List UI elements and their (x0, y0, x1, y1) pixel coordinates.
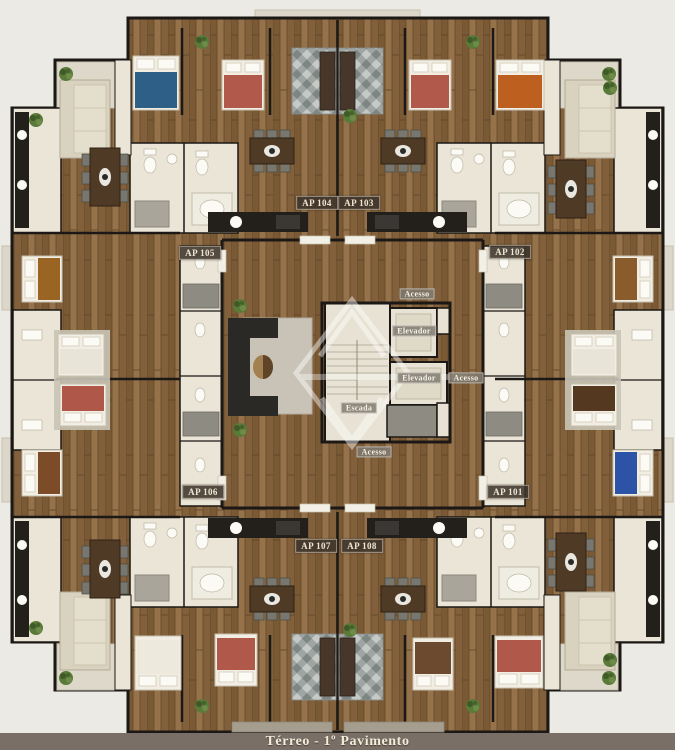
apartment-label-ap-104: AP 104 (296, 196, 338, 210)
apartment-label-ap-105: AP 105 (179, 246, 221, 260)
bed-brown-top-right (613, 256, 653, 302)
access-label-bottom: Acesso (357, 446, 392, 457)
access-label-top: Acesso (400, 288, 435, 299)
bed-white-right (571, 334, 617, 376)
bed-red-2 (409, 60, 451, 110)
bed-white-bottom (135, 636, 181, 690)
floor-caption: Térreo - 1º Pavimento (265, 734, 409, 750)
apartment-label-ap-101: AP 101 (487, 485, 529, 499)
floor-caption-bar: Térreo - 1º Pavimento (0, 733, 675, 750)
apartment-label-ap-103: AP 103 (338, 196, 380, 210)
bed-red-bottom-left (215, 634, 257, 686)
stairs-label: Escada (341, 402, 377, 413)
bed-orange (496, 60, 544, 110)
bed-white-left (58, 334, 104, 376)
elevator-label-2: Elevador (397, 372, 441, 383)
floor-plan-image: AP 101 AP 102 AP 103 AP 104 AP 105 AP 10… (0, 0, 675, 750)
apartment-label-ap-108: AP 108 (341, 539, 383, 553)
apartment-label-ap-102: AP 102 (489, 245, 531, 259)
bed-navy-bottom-right (613, 450, 653, 496)
bed-brown-bottom-left (22, 450, 62, 496)
bed-red-bottom-right (495, 636, 543, 688)
apartment-label-ap-107: AP 107 (295, 539, 337, 553)
utility-room (387, 405, 437, 437)
elevator-label-1: Elevador (392, 325, 436, 336)
bed-dark-bottom-right (413, 638, 453, 690)
bed-red-1 (222, 60, 264, 110)
access-label-right: Acesso (449, 372, 484, 383)
bed-blue (133, 56, 179, 110)
bed-red-left (60, 384, 106, 426)
bed-darkbrown-right (571, 384, 617, 426)
floor-plan-drawing (0, 0, 675, 750)
bed-brown-top-left (22, 256, 62, 302)
apartment-label-ap-106: AP 106 (182, 485, 224, 499)
